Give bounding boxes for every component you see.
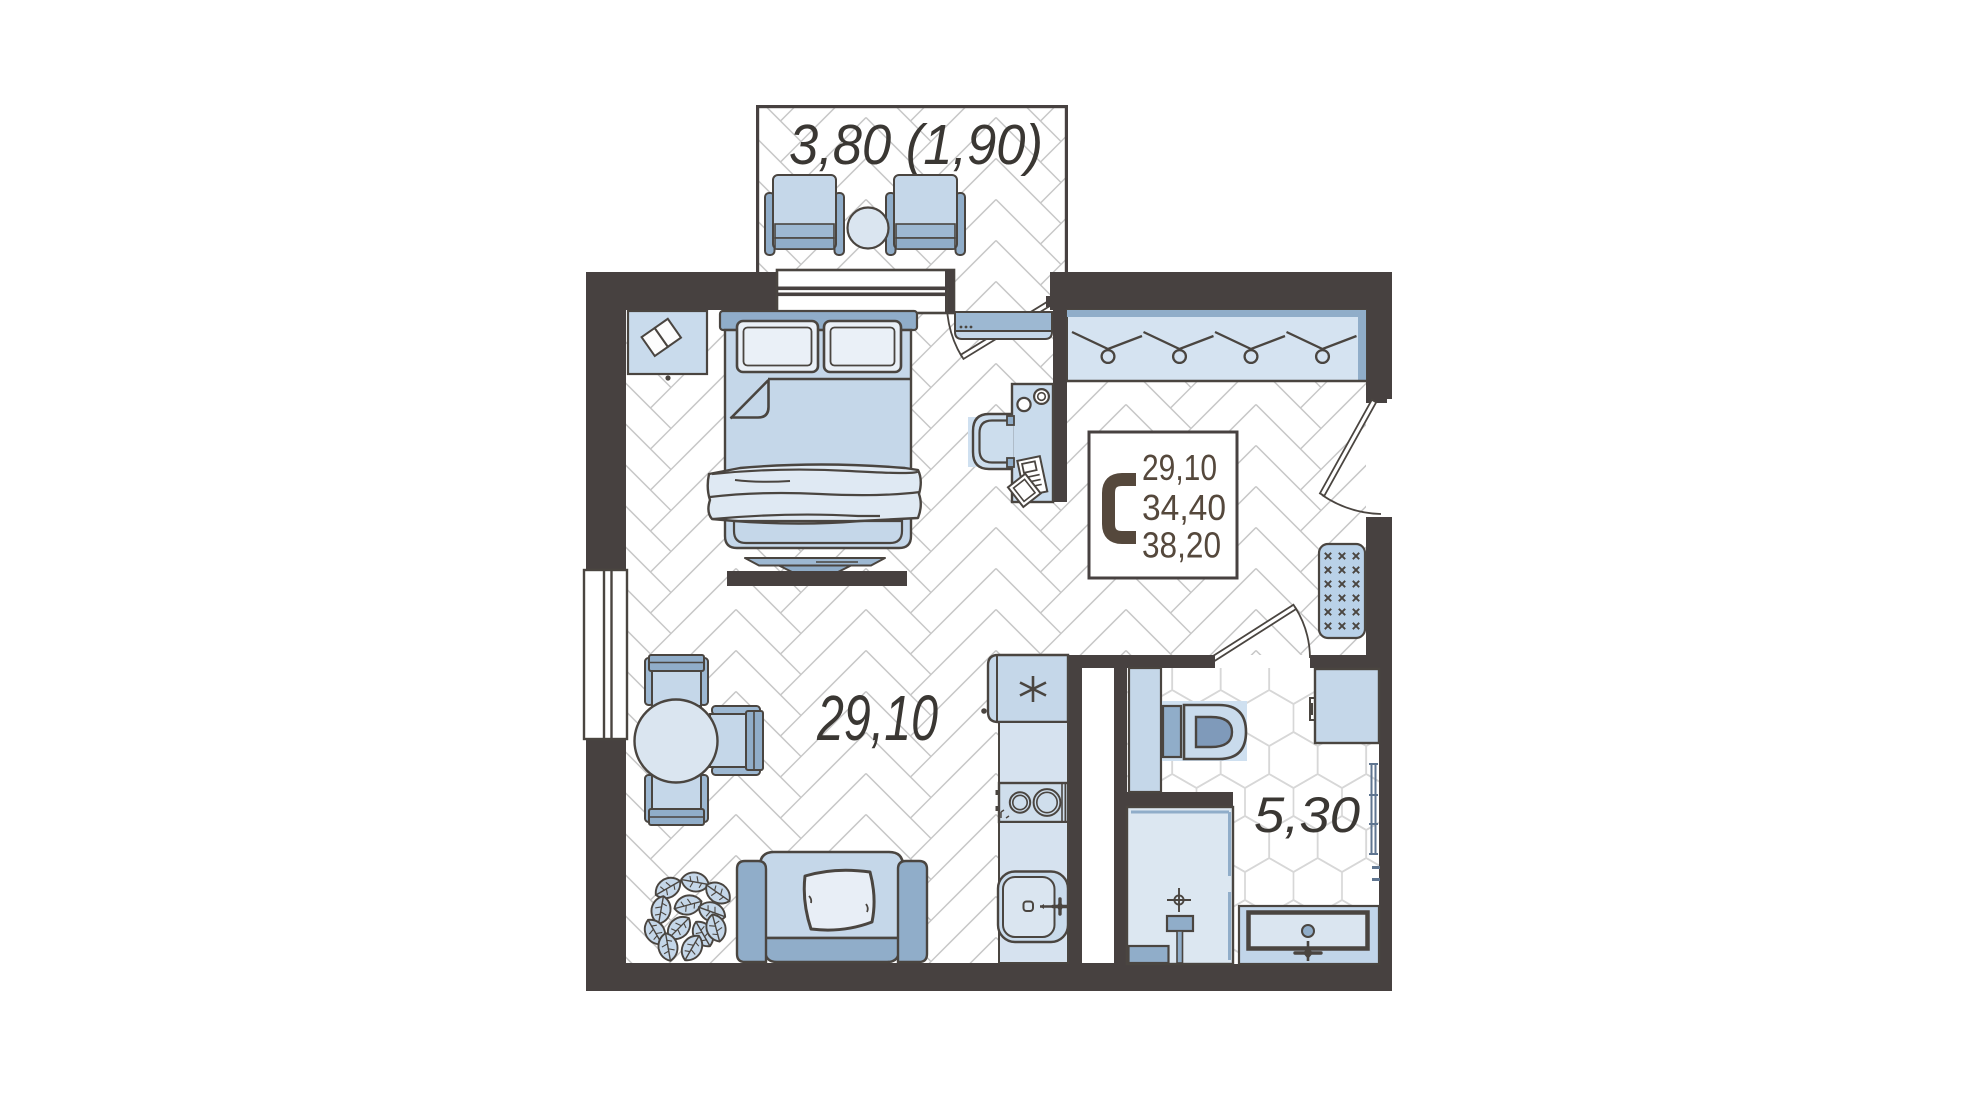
svg-text:3,80 (1,90): 3,80 (1,90) (789, 113, 1043, 177)
svg-text:29,10: 29,10 (1142, 447, 1217, 488)
svg-text:5,30: 5,30 (1254, 787, 1360, 843)
svg-text:38,20: 38,20 (1142, 525, 1221, 566)
svg-text:34,40: 34,40 (1142, 487, 1226, 528)
svg-text:29,10: 29,10 (816, 682, 938, 754)
